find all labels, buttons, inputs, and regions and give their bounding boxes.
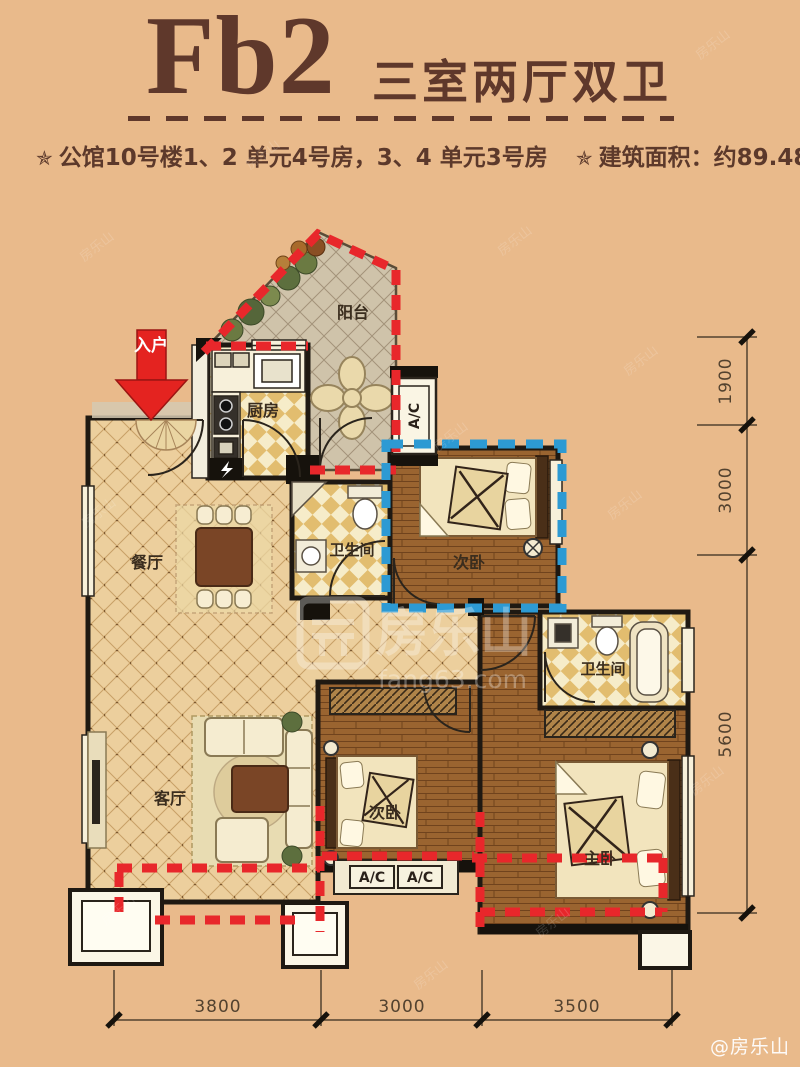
dining-label: 餐厅	[130, 553, 163, 572]
bedroom1-label: 次卧	[453, 553, 485, 572]
ac-label: A/C	[359, 870, 385, 886]
bay-window-middle	[283, 903, 347, 967]
svg-text:房乐山: 房乐山	[411, 957, 452, 994]
bedside-lamp	[642, 742, 658, 758]
plant	[282, 846, 302, 866]
plant	[282, 712, 302, 732]
dimension-right: 1900 3000 5600	[697, 330, 757, 920]
svg-text:房乐山: 房乐山	[495, 223, 536, 260]
ac-shelf-bottom: A/C A/C	[334, 860, 458, 894]
ac-label: A/C	[407, 870, 433, 886]
tv	[92, 760, 100, 824]
entry-label: 入户	[134, 335, 168, 356]
dim-bottom-3: 3500	[553, 997, 600, 1017]
kitchen-label: 厨房	[247, 401, 279, 420]
svg-text:房乐山: 房乐山	[605, 487, 646, 524]
quilt	[448, 467, 507, 530]
floor-plan: 入户 A/C A/C A/C	[0, 0, 800, 1067]
bathroom1-label: 卫生间	[329, 541, 374, 559]
dimension-bottom: 3800 3000 3500	[107, 970, 679, 1027]
entry-side-wall	[192, 345, 208, 478]
master-label: 主卧	[584, 849, 616, 868]
corner-watermark: @房乐山	[710, 1032, 790, 1059]
watermark-site: fang63.com	[378, 665, 527, 694]
wardrobe	[545, 710, 675, 737]
dining-table	[196, 528, 252, 586]
dim-right-3: 5600	[716, 710, 736, 757]
side-sofa	[286, 730, 312, 848]
bedside-lamp	[324, 741, 338, 755]
ac-label: A/C	[407, 403, 423, 429]
dim-bottom-2: 3000	[378, 997, 425, 1017]
svg-text:房乐山: 房乐山	[243, 137, 284, 174]
coffee-table	[232, 766, 288, 812]
dining-set	[176, 505, 272, 613]
balcony-label: 阳台	[337, 303, 369, 322]
floorplan-page: Fb2 三室两厅双卫 ✯ 公馆10号楼1、2 单元4号房，3、4 单元3号房 ✯…	[0, 0, 800, 1067]
dim-right-1: 1900	[716, 357, 736, 404]
watermark-brand: 房乐山	[376, 604, 532, 664]
bay-window-master	[640, 932, 690, 968]
bathroom2-label: 卫生间	[580, 660, 625, 678]
svg-text:房乐山: 房乐山	[621, 343, 662, 380]
armchair	[216, 818, 268, 862]
dim-right-2: 3000	[716, 466, 736, 513]
living-label: 客厅	[154, 789, 186, 808]
bedroom2-label: 次卧	[369, 803, 401, 822]
dim-bottom-1: 3800	[194, 997, 241, 1017]
bathroom2-window	[682, 628, 694, 692]
svg-text:房乐山: 房乐山	[693, 27, 734, 64]
svg-text:房乐山: 房乐山	[77, 229, 118, 266]
